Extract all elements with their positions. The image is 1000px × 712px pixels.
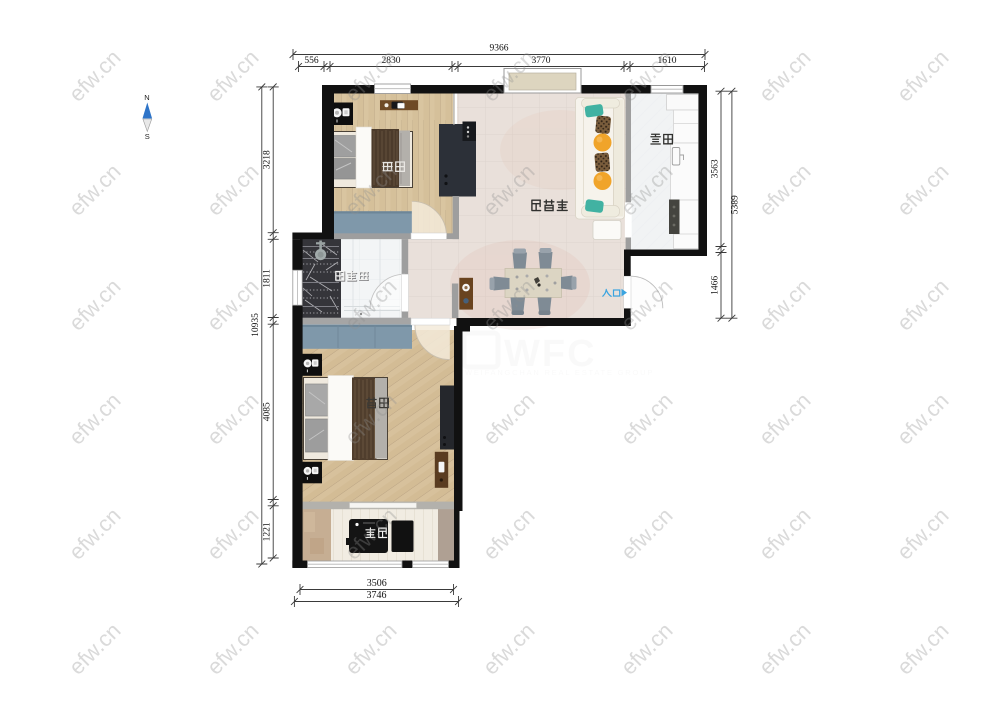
svg-text:3218: 3218 [263, 150, 273, 169]
svg-text:N: N [144, 93, 149, 102]
svg-text:3746: 3746 [367, 590, 387, 601]
svg-text:WEIFANGCHAN REAL ESTATE GROUP: WEIFANGCHAN REAL ESTATE GROUP [465, 368, 654, 377]
svg-text:1221: 1221 [263, 522, 273, 541]
svg-text:556: 556 [304, 56, 319, 66]
svg-text:S: S [145, 132, 150, 141]
svg-text:1811: 1811 [263, 269, 273, 288]
svg-text:5389: 5389 [731, 195, 741, 214]
svg-text:9366: 9366 [490, 44, 509, 54]
svg-text:3563: 3563 [711, 159, 721, 178]
svg-text:10935: 10935 [251, 313, 261, 337]
svg-text:4085: 4085 [263, 402, 273, 421]
svg-text:3506: 3506 [367, 578, 387, 589]
svg-text:1466: 1466 [711, 276, 721, 295]
